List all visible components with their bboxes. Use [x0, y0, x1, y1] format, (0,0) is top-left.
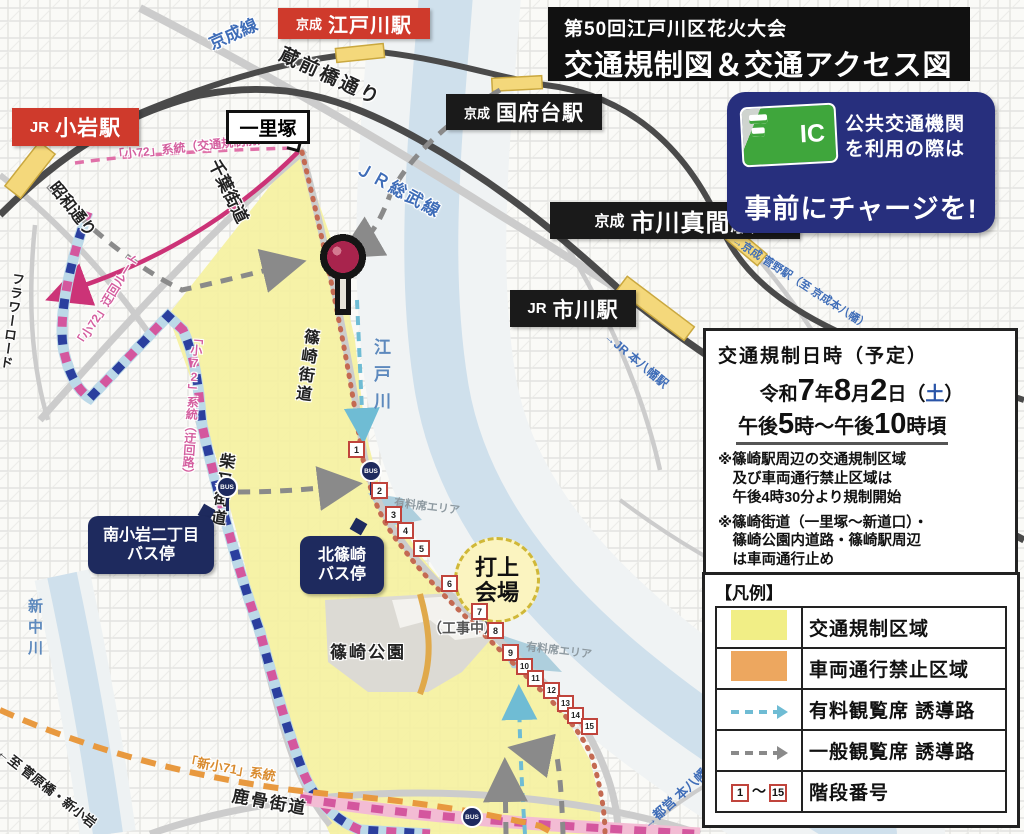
stair-marker: 5 — [413, 540, 430, 557]
stair-number-icon: 1 — [731, 784, 749, 802]
note-line: は車両通行止め — [718, 551, 1005, 570]
bus-stop-suffix: バス停 — [127, 545, 175, 564]
time-part: 10 — [874, 408, 906, 440]
legend-row-general-route: 一般観覧席 誘導路 — [716, 730, 1006, 771]
bus-stop-icon-minami-koiwa: BUS — [216, 476, 238, 511]
station-operator: 京成 — [296, 14, 322, 33]
note-line: 及び車両通行禁止区域は — [718, 470, 1005, 489]
shinozaki-park-label: 篠崎公園 — [330, 638, 406, 663]
note-line: ※篠崎駅周辺の交通規制区域 — [718, 451, 1005, 470]
station-jr-ichikawa: JR 市川駅 — [510, 290, 636, 327]
ic-notice-line1: 公共交通機関 — [845, 109, 965, 136]
legend-label: 一般観覧席 誘導路 — [802, 730, 1006, 771]
date-month: 8 — [834, 372, 851, 407]
title-line2: 交通規制図＆交通アクセス図 — [564, 42, 970, 84]
schedule-note1: ※篠崎駅周辺の交通規制区域 及び車両通行禁止区域は 午後4時30分より規制開始 — [718, 451, 1005, 508]
ichirizuka-label: 一里塚 — [239, 114, 296, 141]
shin-nakagawa-label: 新中川 — [24, 598, 45, 661]
stair-marker: 6 — [441, 575, 458, 592]
date-paren: （ — [906, 384, 925, 405]
regulation-schedule-box: 交通規制日時（予定） 令和7年8月2日（土） 午後5時〜午後10時頃 ※篠崎駅周… — [703, 328, 1018, 576]
bus-stop-name: 北篠崎 — [318, 546, 366, 565]
station-operator: JR — [527, 300, 546, 317]
station-name: 小岩駅 — [55, 112, 121, 142]
ic-card-icon: IC — [739, 103, 838, 168]
launch-site-label: 打上 — [475, 555, 519, 580]
kita-shinozaki-bus-callout: 北篠崎 バス停 — [300, 536, 384, 594]
legend-label: 階段番号 — [802, 771, 1006, 812]
tilde: 〜 — [752, 783, 766, 799]
date-year-unit: 年 — [815, 384, 834, 405]
date-year: 7 — [798, 372, 815, 407]
title-box: 第50回江戸川区花火大会 交通規制図＆交通アクセス図 — [548, 7, 970, 81]
general-route-arrow-icon — [731, 746, 788, 760]
note-line: ※篠崎街道（一里塚〜新道口）・ — [718, 514, 1005, 533]
stair-marker: 7 — [471, 603, 488, 620]
legend-label: 有料観覧席 誘導路 — [802, 689, 1006, 730]
legend-row-no-vehicle: 車両通行禁止区域 — [716, 648, 1006, 689]
stair-marker: 11 — [527, 670, 544, 687]
minami-koiwa-bus-callout: 南小岩二丁目 バス停 — [88, 516, 214, 574]
paid-route-arrow-icon — [731, 705, 788, 719]
note-line: 篠崎公園内道路・篠崎駅周辺 — [718, 532, 1005, 551]
map-pin-cursor-icon — [317, 233, 369, 319]
ichirizuka-callout: 一里塚 — [226, 110, 310, 144]
title-line1: 第50回江戸川区花火大会 — [564, 14, 970, 41]
legend-heading: 【凡例】 — [715, 579, 1007, 604]
legend-row-paid-route: 有料観覧席 誘導路 — [716, 689, 1006, 730]
station-name: 市川駅 — [553, 294, 619, 324]
ic-notice-line2: を利用の際は — [845, 134, 965, 161]
note-line: 午後4時30分より規制開始 — [718, 489, 1005, 508]
station-operator: 京成 — [594, 210, 624, 231]
stair-number-icon: 15 — [769, 784, 787, 802]
legend-box: 【凡例】 交通規制区域 車両通行禁止区域 有料観覧席 誘導路 一般観覧席 誘導路… — [702, 572, 1020, 828]
ic-card-text: IC — [799, 119, 825, 149]
station-name: 江戸川駅 — [328, 9, 412, 38]
station-keisei-edogawa: 京成 江戸川駅 — [278, 8, 430, 39]
stair-marker: 3 — [385, 506, 402, 523]
bus-icon: BUS — [461, 806, 483, 828]
time-part: 5 — [778, 408, 794, 440]
legend-label: 車両通行禁止区域 — [802, 648, 1006, 689]
bus-icon: BUS — [216, 476, 238, 498]
stair-marker: 15 — [581, 718, 598, 735]
station-jr-koiwa: JR 小岩駅 — [12, 108, 139, 146]
date-day-unit: 日 — [887, 384, 906, 405]
schedule-time: 午後5時〜午後10時頃 — [736, 408, 948, 445]
no-vehicle-swatch — [731, 651, 787, 681]
ic-charge-notice: IC 公共交通機関 を利用の際は 事前にチャージを! — [727, 92, 995, 233]
station-name: 国府台駅 — [496, 97, 584, 127]
station-operator: 京成 — [464, 103, 490, 122]
date-paren: ） — [944, 384, 963, 405]
bus-icon: BUS — [360, 460, 382, 482]
time-part: 午後 — [738, 416, 778, 438]
legend-label: 交通規制区域 — [802, 607, 1006, 648]
legend-table: 交通規制区域 車両通行禁止区域 有料観覧席 誘導路 一般観覧席 誘導路 1〜15… — [715, 606, 1007, 813]
bus-stop-suffix: バス停 — [318, 565, 366, 584]
date-era: 令和 — [760, 384, 798, 405]
schedule-date: 令和7年8月2日（土） — [718, 372, 1005, 408]
time-part: 時頃 — [906, 416, 946, 438]
stair-marker: 1 — [348, 441, 365, 458]
legend-row-regulated: 交通規制区域 — [716, 607, 1006, 648]
traffic-regulation-map: 京成線 蔵前橋通り ＪＲ総武線 昭和通り 千葉街道 フラワーロード 柴又街道 篠… — [0, 0, 1024, 834]
schedule-note2: ※篠崎街道（一里塚〜新道口）・ 篠崎公園内道路・篠崎駅周辺 は車両通行止め — [718, 514, 1005, 571]
date-month-unit: 月 — [851, 384, 870, 405]
launch-site-label: 会場 — [475, 580, 519, 605]
regulated-area-swatch — [731, 610, 787, 640]
launch-site-circle: 打上 会場 — [454, 537, 540, 623]
station-keisei-konodai: 京成 国府台駅 — [446, 94, 602, 130]
date-weekday: 土 — [925, 384, 944, 405]
bus-stop-icon-south: BUS — [461, 806, 483, 828]
time-part: 時〜午後 — [794, 416, 874, 438]
edogawa-river-label: 江戸川 — [368, 338, 393, 419]
date-day: 2 — [870, 372, 887, 407]
ic-charge-line: 事前にチャージを! — [727, 187, 995, 226]
bus-stop-name: 南小岩二丁目 — [103, 526, 199, 545]
bus-stop-pole — [226, 498, 229, 511]
train-icon — [749, 114, 767, 124]
station-operator: JR — [30, 119, 49, 136]
legend-row-stairs: 1〜15 階段番号 — [716, 771, 1006, 812]
stair-marker: 4 — [397, 522, 414, 539]
stair-marker: 2 — [371, 482, 388, 499]
bus-icon — [752, 127, 765, 137]
stair-marker: 8 — [487, 622, 504, 639]
schedule-heading: 交通規制日時（予定） — [718, 341, 1005, 368]
